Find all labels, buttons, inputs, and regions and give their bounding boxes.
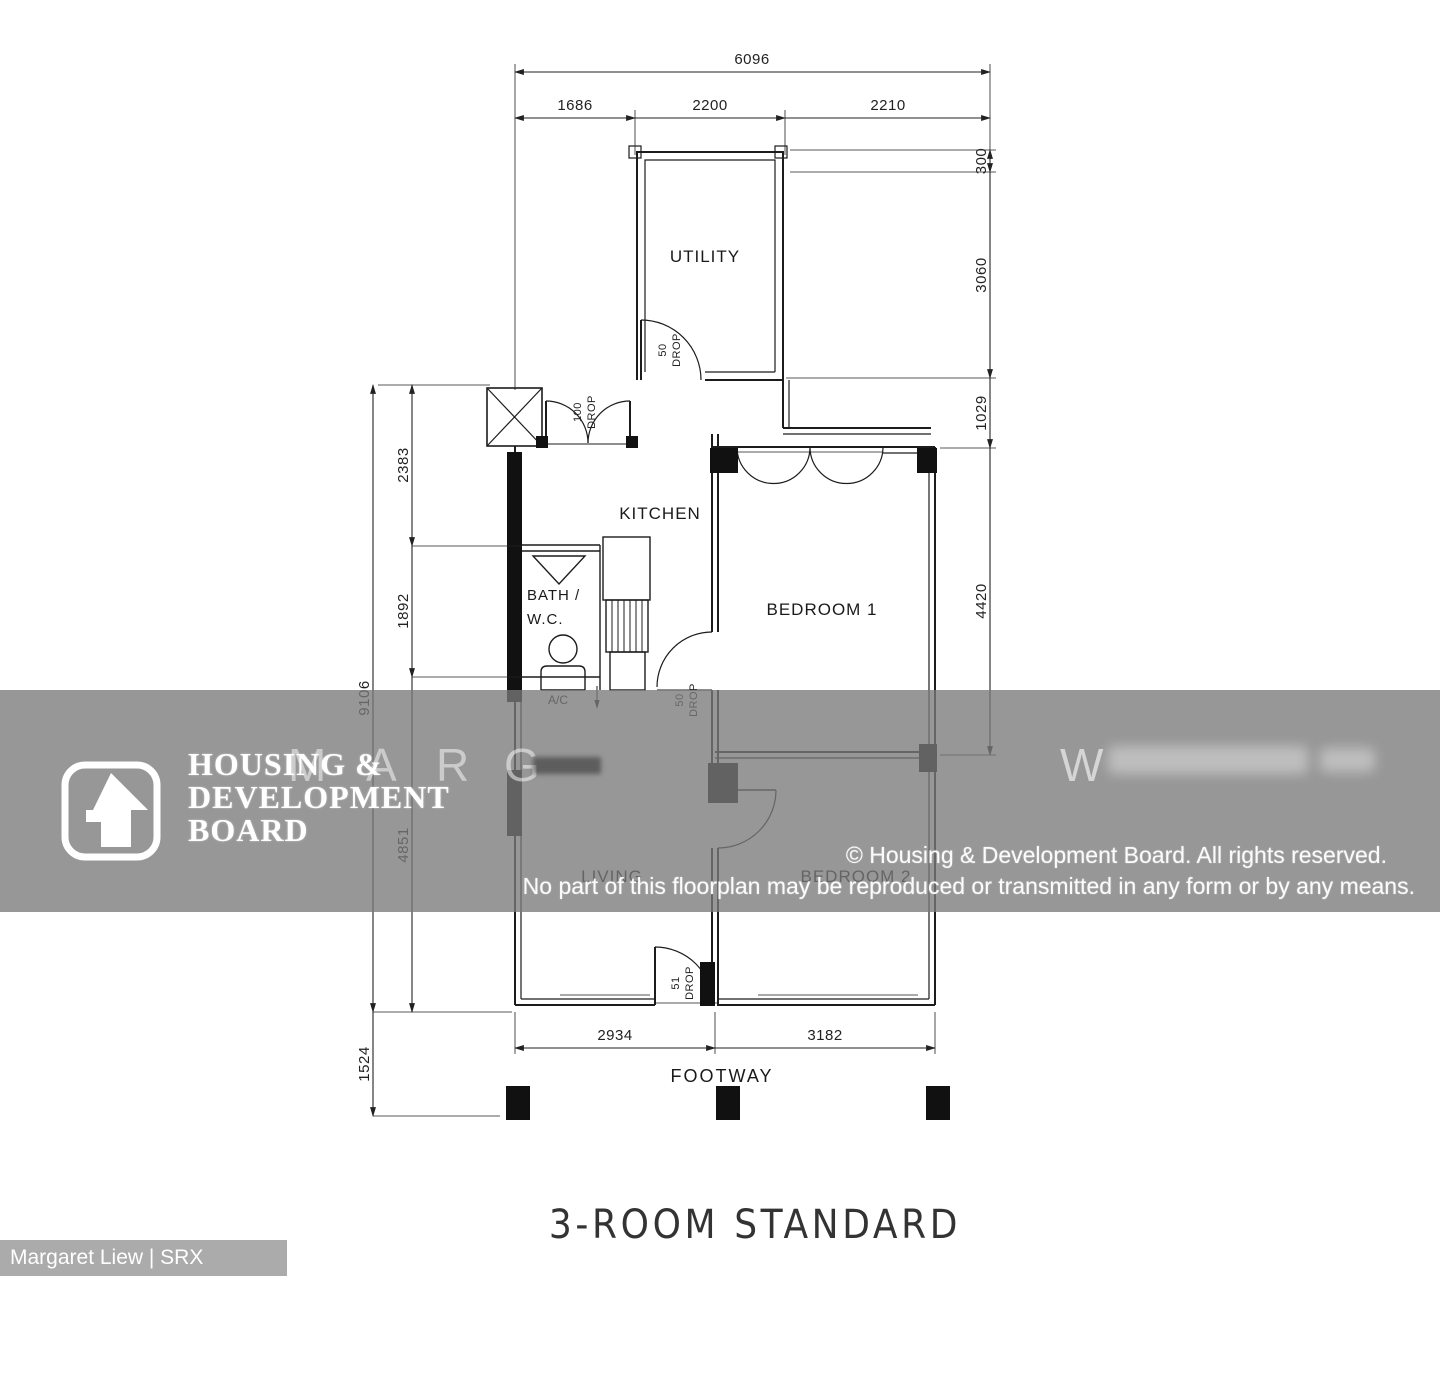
dimension-label: 1892 [395,593,412,628]
kitchen-counter [603,537,650,600]
dimension-label: 6096 [734,51,769,68]
drop-value: 100 [572,402,584,422]
drop-label: DROP [586,395,598,429]
plan-title: 3-ROOM STANDARD [544,1202,967,1248]
kitchen-door-arc [657,632,712,687]
agent-credit-ribbon: Margaret Liew | SRX PROPERTY [0,1240,287,1276]
room-label-bath: BATH / [527,587,580,604]
room-label-bedroom1: BEDROOM 1 [766,600,877,619]
faint-watermark-letter: W [1060,738,1103,792]
kitchen-hatch [612,600,642,652]
dimension-label: 2934 [597,1027,632,1044]
dimension-label: 2210 [870,97,905,114]
dimension-lines [373,64,996,1116]
dimension-label: 300 [973,148,990,175]
faint-watermark-letter: M [288,738,326,792]
faint-watermark-letter: R [436,738,469,792]
wc-symbol [549,635,577,663]
dimension-label: 1524 [356,1046,373,1081]
bath-walls [522,545,600,551]
drop-label: DROP [684,966,696,1000]
room-label-wc: W.C. [527,611,564,628]
drop-value: 50 [657,343,669,356]
footway-post [506,1086,530,1120]
dimension-label: 4420 [973,583,990,618]
plan-labels: 6096 1686 2200 2210 300 3060 1029 4420 2… [356,51,990,1086]
illegible-label [533,757,601,774]
copyright-notice: © Housing & Development Board. All right… [480,840,1415,902]
dimension-label: 1686 [557,97,592,114]
faint-watermark-letter: A [366,738,397,792]
footway-post [716,1086,740,1120]
footway-post [926,1086,950,1120]
dimension-label: 2383 [395,447,412,482]
copyright-line2: No part of this floorplan may be reprodu… [480,871,1415,902]
room-label-kitchen: KITCHEN [619,504,701,523]
blurred-watermark-text [1108,746,1308,774]
watermark-band: HOUSING & DEVELOPMENT BOARD M A R G W © … [0,690,1440,912]
hdb-logo-line3: BOARD [188,814,450,847]
dimension-label: 2200 [692,97,727,114]
room-label-footway: FOOTWAY [671,1066,774,1086]
shower-symbol [533,556,585,584]
copyright-line1: © Housing & Development Board. All right… [480,840,1387,871]
dimension-label: 3060 [973,257,990,292]
blurred-watermark-text [1320,748,1375,772]
hdb-logo-icon [60,760,180,870]
drop-label: DROP [671,333,683,367]
drop-value: 51 [670,976,682,989]
dimension-label: 3182 [807,1027,842,1044]
room-label-utility: UTILITY [670,247,740,266]
floorplan-page: 6096 1686 2200 2210 300 3060 1029 4420 2… [0,0,1440,1384]
dimension-label: 1029 [973,395,990,430]
bedroom1-window-arcs [737,447,883,484]
